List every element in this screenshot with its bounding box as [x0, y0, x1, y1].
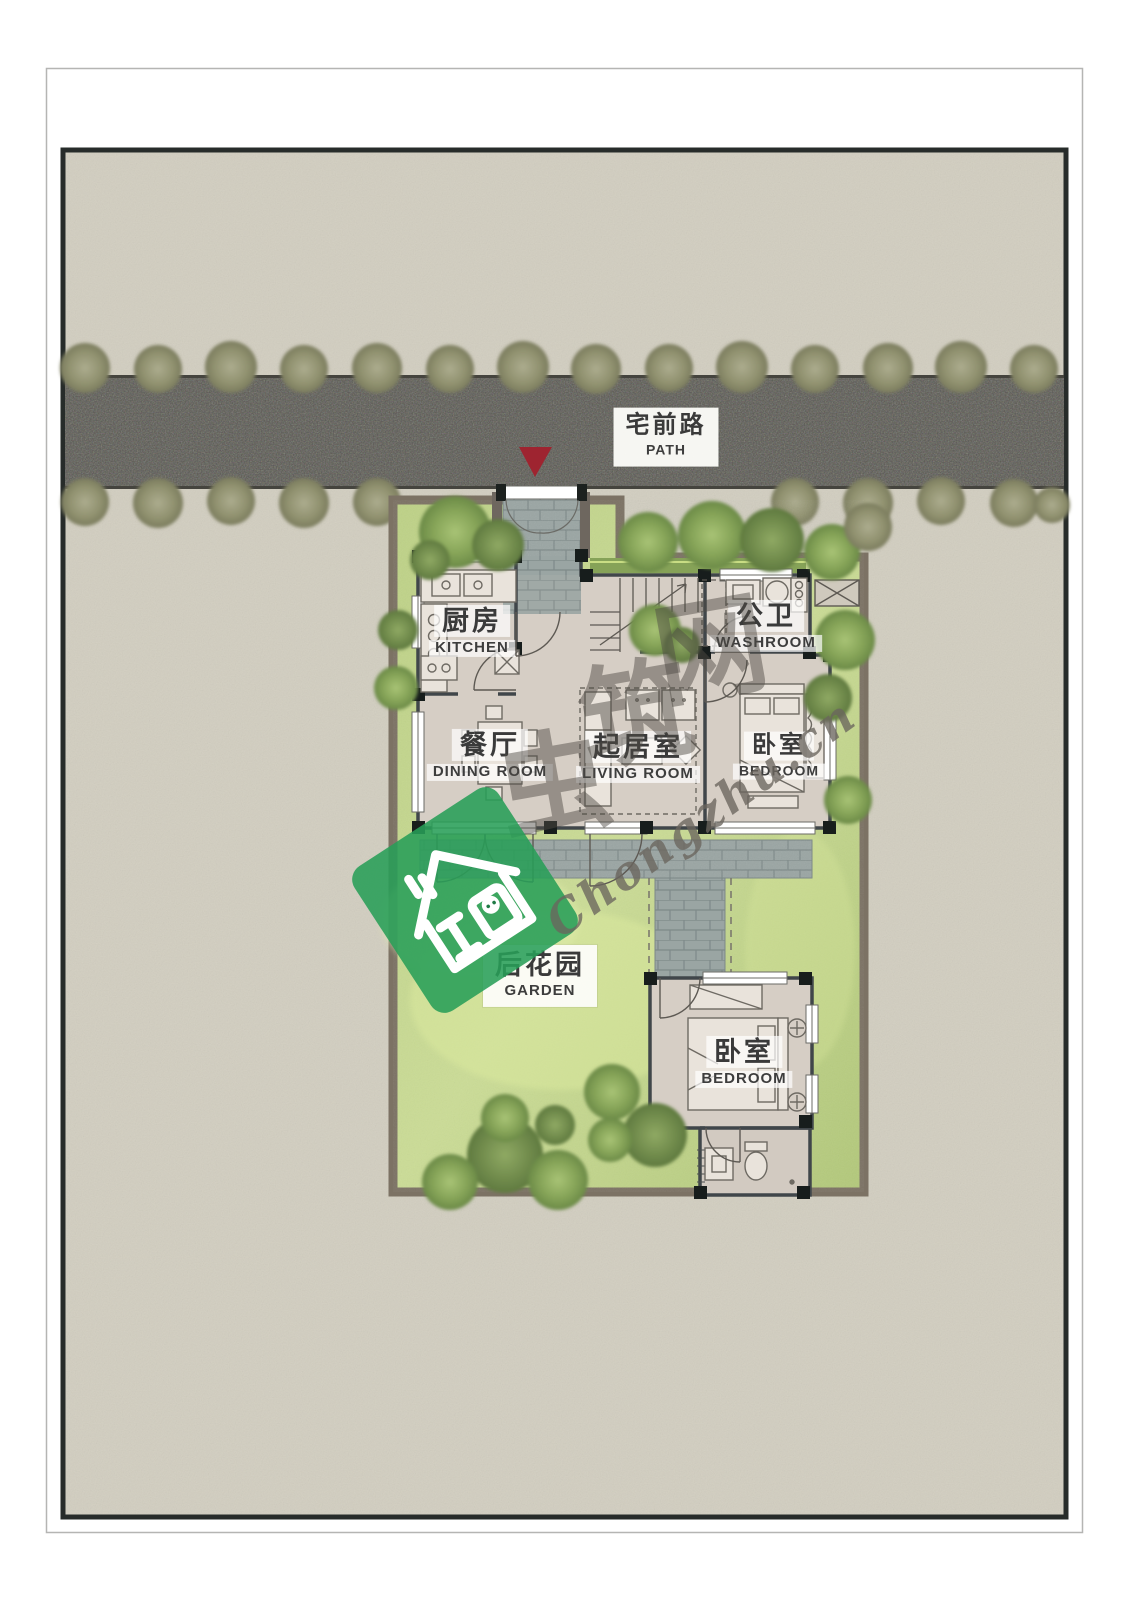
garden-label: 后花园 GARDEN	[483, 945, 597, 1007]
site-plan-drawing	[0, 0, 1130, 1600]
road	[65, 375, 1064, 489]
room-label-washroom: 公卫 WASHROOM	[710, 600, 822, 652]
room-label-dining: 餐厅 DINING ROOM	[427, 729, 553, 781]
floor-plan-page: 宅前路 PATH 厨房 KITCHEN 公卫 WASHROOM 餐厅 DININ…	[0, 0, 1130, 1600]
road-label-zh: 宅前路	[626, 413, 707, 440]
road-label-en: PATH	[646, 442, 686, 458]
road-label: 宅前路 PATH	[614, 408, 719, 467]
room-label-living: 起居室 LIVING ROOM	[576, 731, 700, 783]
room-label-bedroom-lower: 卧室 BEDROOM	[695, 1036, 792, 1088]
room-label-kitchen: 厨房 KITCHEN	[429, 605, 515, 657]
garden-path	[649, 878, 731, 978]
room-label-bedroom-upper: 卧室 BEDROOM	[733, 732, 825, 781]
